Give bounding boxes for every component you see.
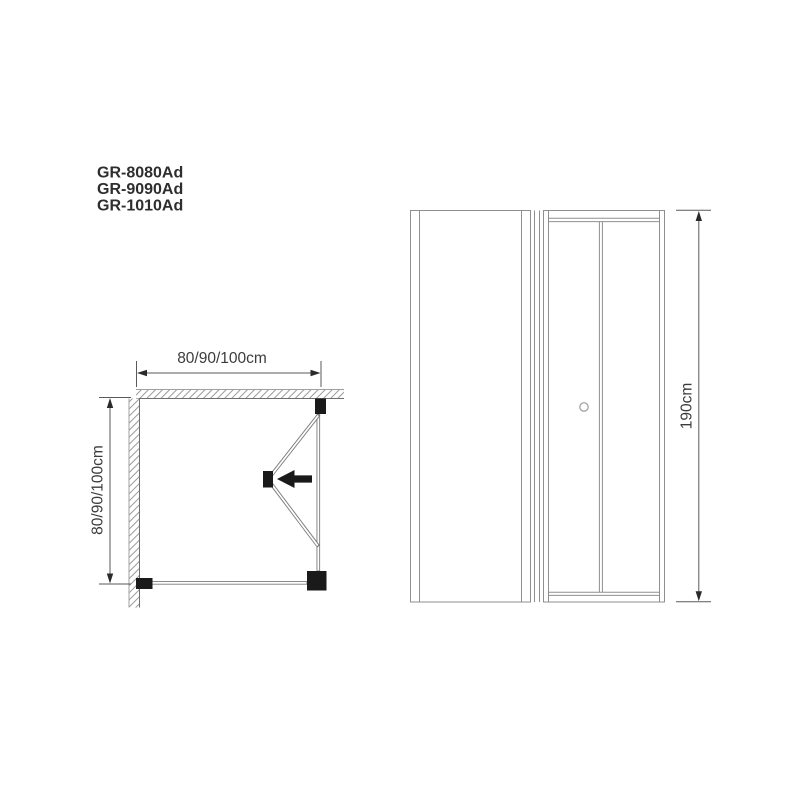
dim-arrowhead-up [696,211,702,221]
elevation-view: 190cm [411,210,712,602]
model-number-list: GR-8080Ad GR-9090Ad GR-1010Ad [97,165,183,215]
model-number-3: GR-1010Ad [97,198,183,215]
dim-arrowhead-right [311,370,321,376]
elevation-height-dimension: 190cm [676,210,711,602]
door-knob-icon [580,403,588,411]
plan-corner-block-top-right [315,399,326,415]
model-number-2: GR-9090Ad [97,181,183,198]
plan-top-wall-hatch [136,390,344,399]
plan-corner-block-bottom-left [136,578,153,589]
drawing-canvas: GR-8080Ad GR-9090Ad GR-1010Ad [0,0,800,800]
door-opening-direction-arrow-icon [277,470,312,488]
model-number-1: GR-8080Ad [97,165,183,182]
dim-arrowhead-down [107,574,113,584]
dim-arrowhead-left [137,370,147,376]
plan-depth-label: 80/90/100cm [90,445,107,535]
dim-arrowhead-down [696,591,702,601]
shower-enclosure-diagram: GR-8080Ad GR-9090Ad GR-1010Ad [0,0,800,800]
plan-depth-dimension: 80/90/100cm [90,398,132,585]
plan-width-label: 80/90/100cm [177,350,267,367]
elevation-junction-profile [535,211,540,603]
elevation-bifold-door [544,211,665,603]
plan-door-handle-block [263,471,273,488]
elevation-height-label: 190cm [679,383,696,430]
plan-left-wall-hatch [129,399,140,608]
plan-width-dimension: 80/90/100cm [137,350,322,387]
dim-arrowhead-up [107,398,113,408]
plan-corner-block-bottom-right [307,571,327,591]
plan-view: 80/90/100cm 80/90/100cm [90,350,345,608]
elevation-side-panel [411,211,531,603]
